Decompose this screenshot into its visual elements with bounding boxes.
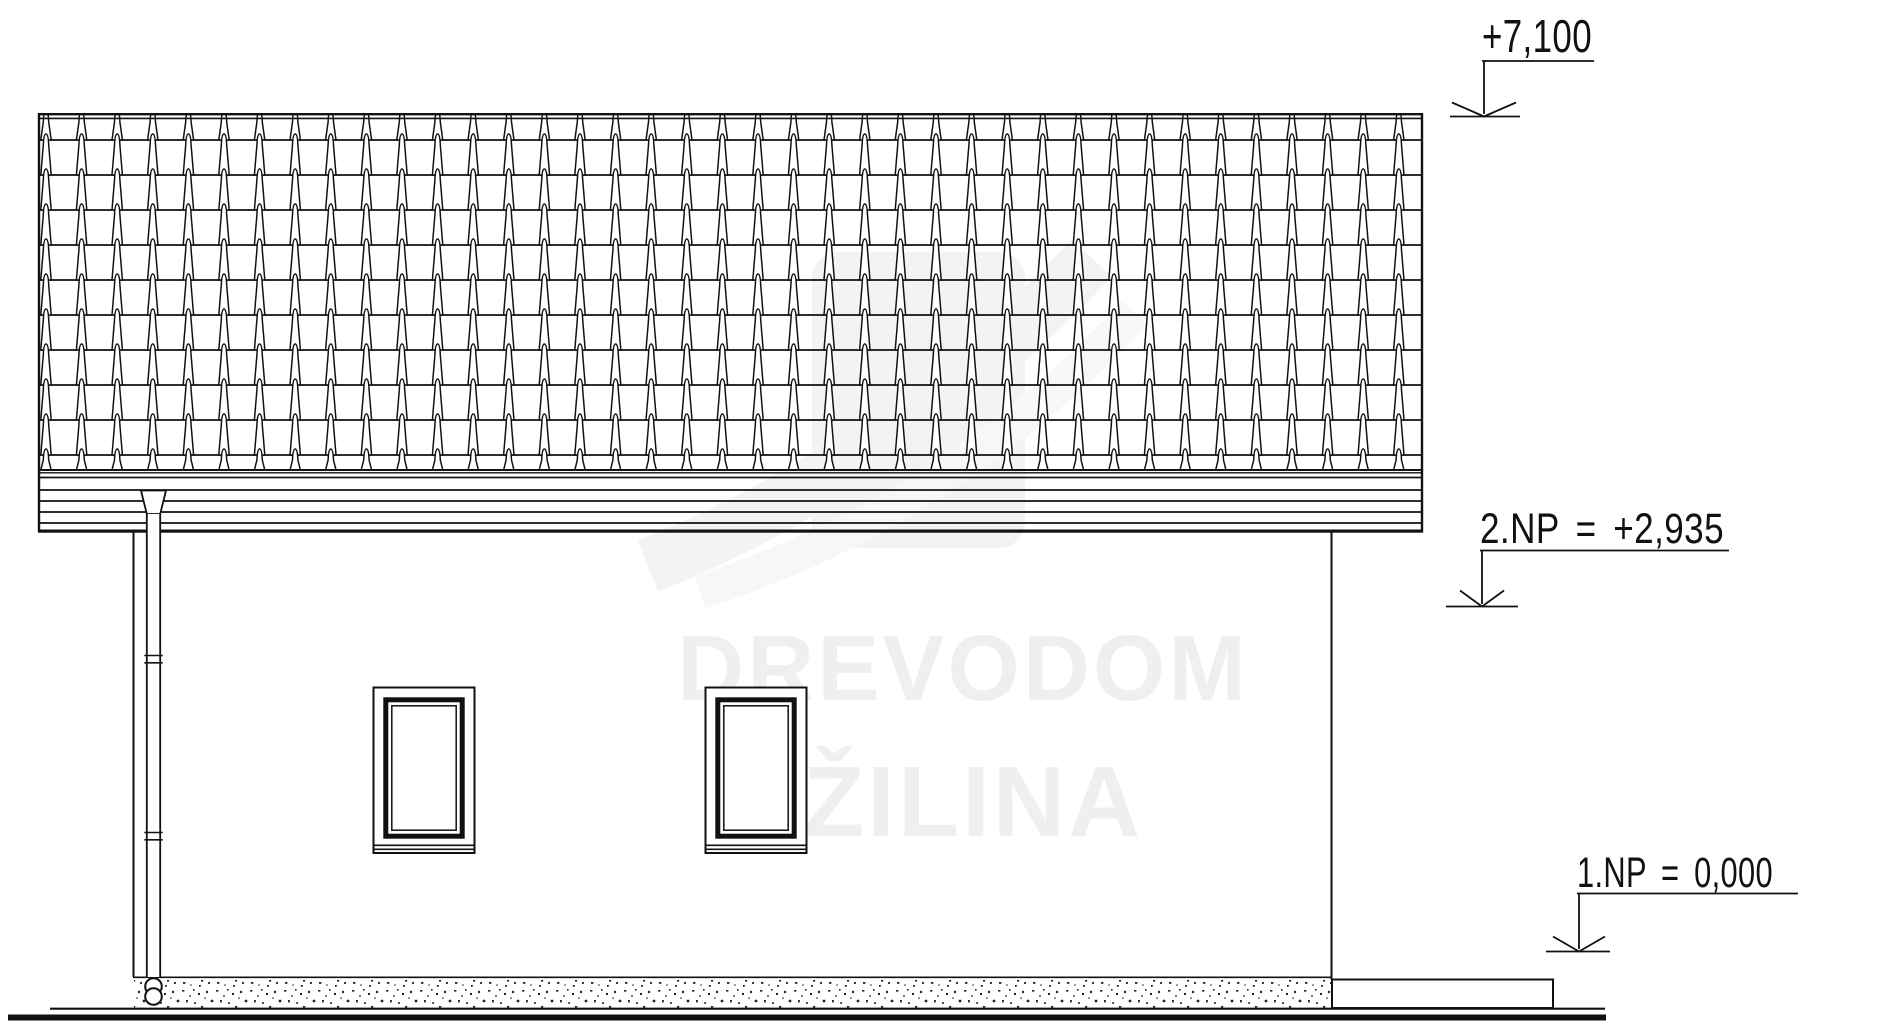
roof	[38, 111, 1423, 532]
elevation-marker-ridge: +7,100	[1450, 10, 1594, 117]
window-1	[374, 688, 475, 854]
window-2	[706, 688, 807, 854]
elevation-label-floor2: 2.NP = +2,935	[1480, 505, 1724, 553]
ground-line-thick	[8, 1015, 1606, 1021]
downspout	[141, 491, 166, 1005]
foundation	[8, 977, 1606, 1020]
elevation-marker-floor1: 1.NP = 0,000	[1546, 849, 1798, 952]
fascia-bottom-edge	[38, 530, 1423, 533]
window-glass	[724, 706, 788, 830]
roof-tile-pattern	[39, 111, 1422, 470]
foundation-strip	[134, 978, 1331, 1008]
gutter-outlet-funnel	[141, 491, 166, 515]
elevation-drawing-canvas: DREVODOM ŽILINA	[0, 0, 1888, 1024]
elevation-label-floor1: 1.NP = 0,000	[1577, 849, 1773, 897]
window-glass	[392, 706, 456, 830]
elevation-label-ridge: +7,100	[1482, 10, 1592, 62]
watermark-text-line2: ŽILINA	[803, 746, 1143, 858]
elevation-marker-floor2: 2.NP = +2,935	[1446, 505, 1729, 607]
elevation-drawing: DREVODOM ŽILINA	[0, 0, 1888, 1024]
downspout-elbow-shoe	[145, 988, 162, 1005]
downspout-pipe-body	[147, 514, 160, 977]
porch-slab	[1332, 980, 1553, 1009]
